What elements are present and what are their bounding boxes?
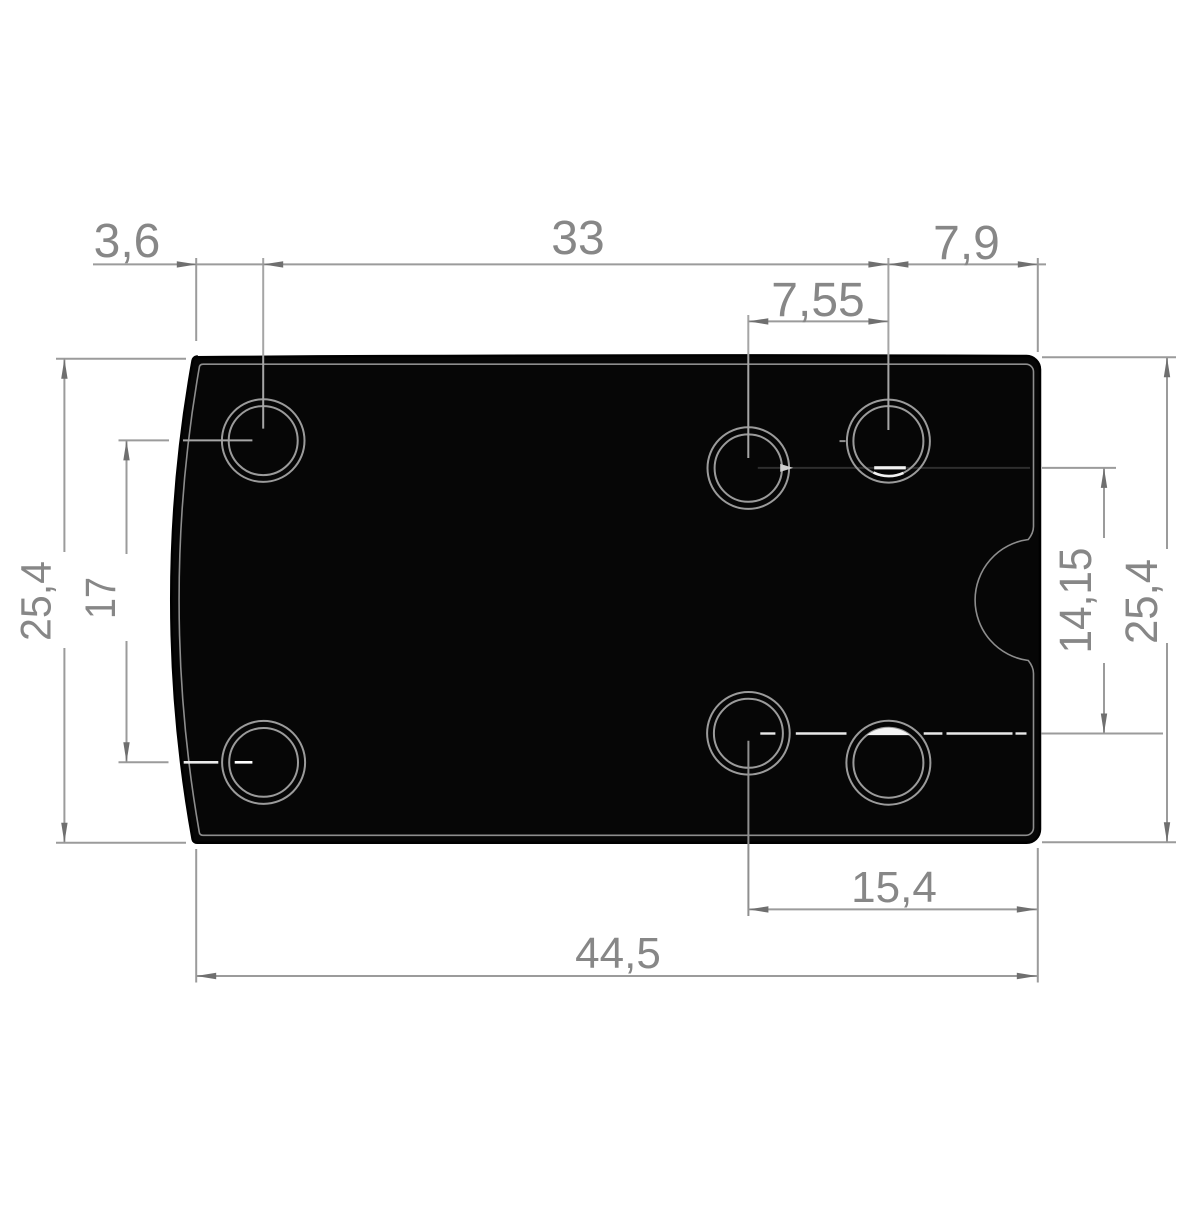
svg-text:17: 17	[77, 577, 125, 619]
svg-text:14,15: 14,15	[1050, 548, 1101, 654]
svg-text:7,9: 7,9	[933, 217, 1000, 270]
svg-text:7,55: 7,55	[771, 274, 864, 327]
svg-text:44,5: 44,5	[575, 929, 661, 978]
svg-text:25,4: 25,4	[13, 561, 61, 641]
svg-text:33: 33	[551, 212, 604, 265]
svg-text:15,4: 15,4	[851, 863, 937, 912]
svg-text:3,6: 3,6	[94, 215, 161, 268]
svg-text:25,4: 25,4	[1116, 559, 1167, 644]
